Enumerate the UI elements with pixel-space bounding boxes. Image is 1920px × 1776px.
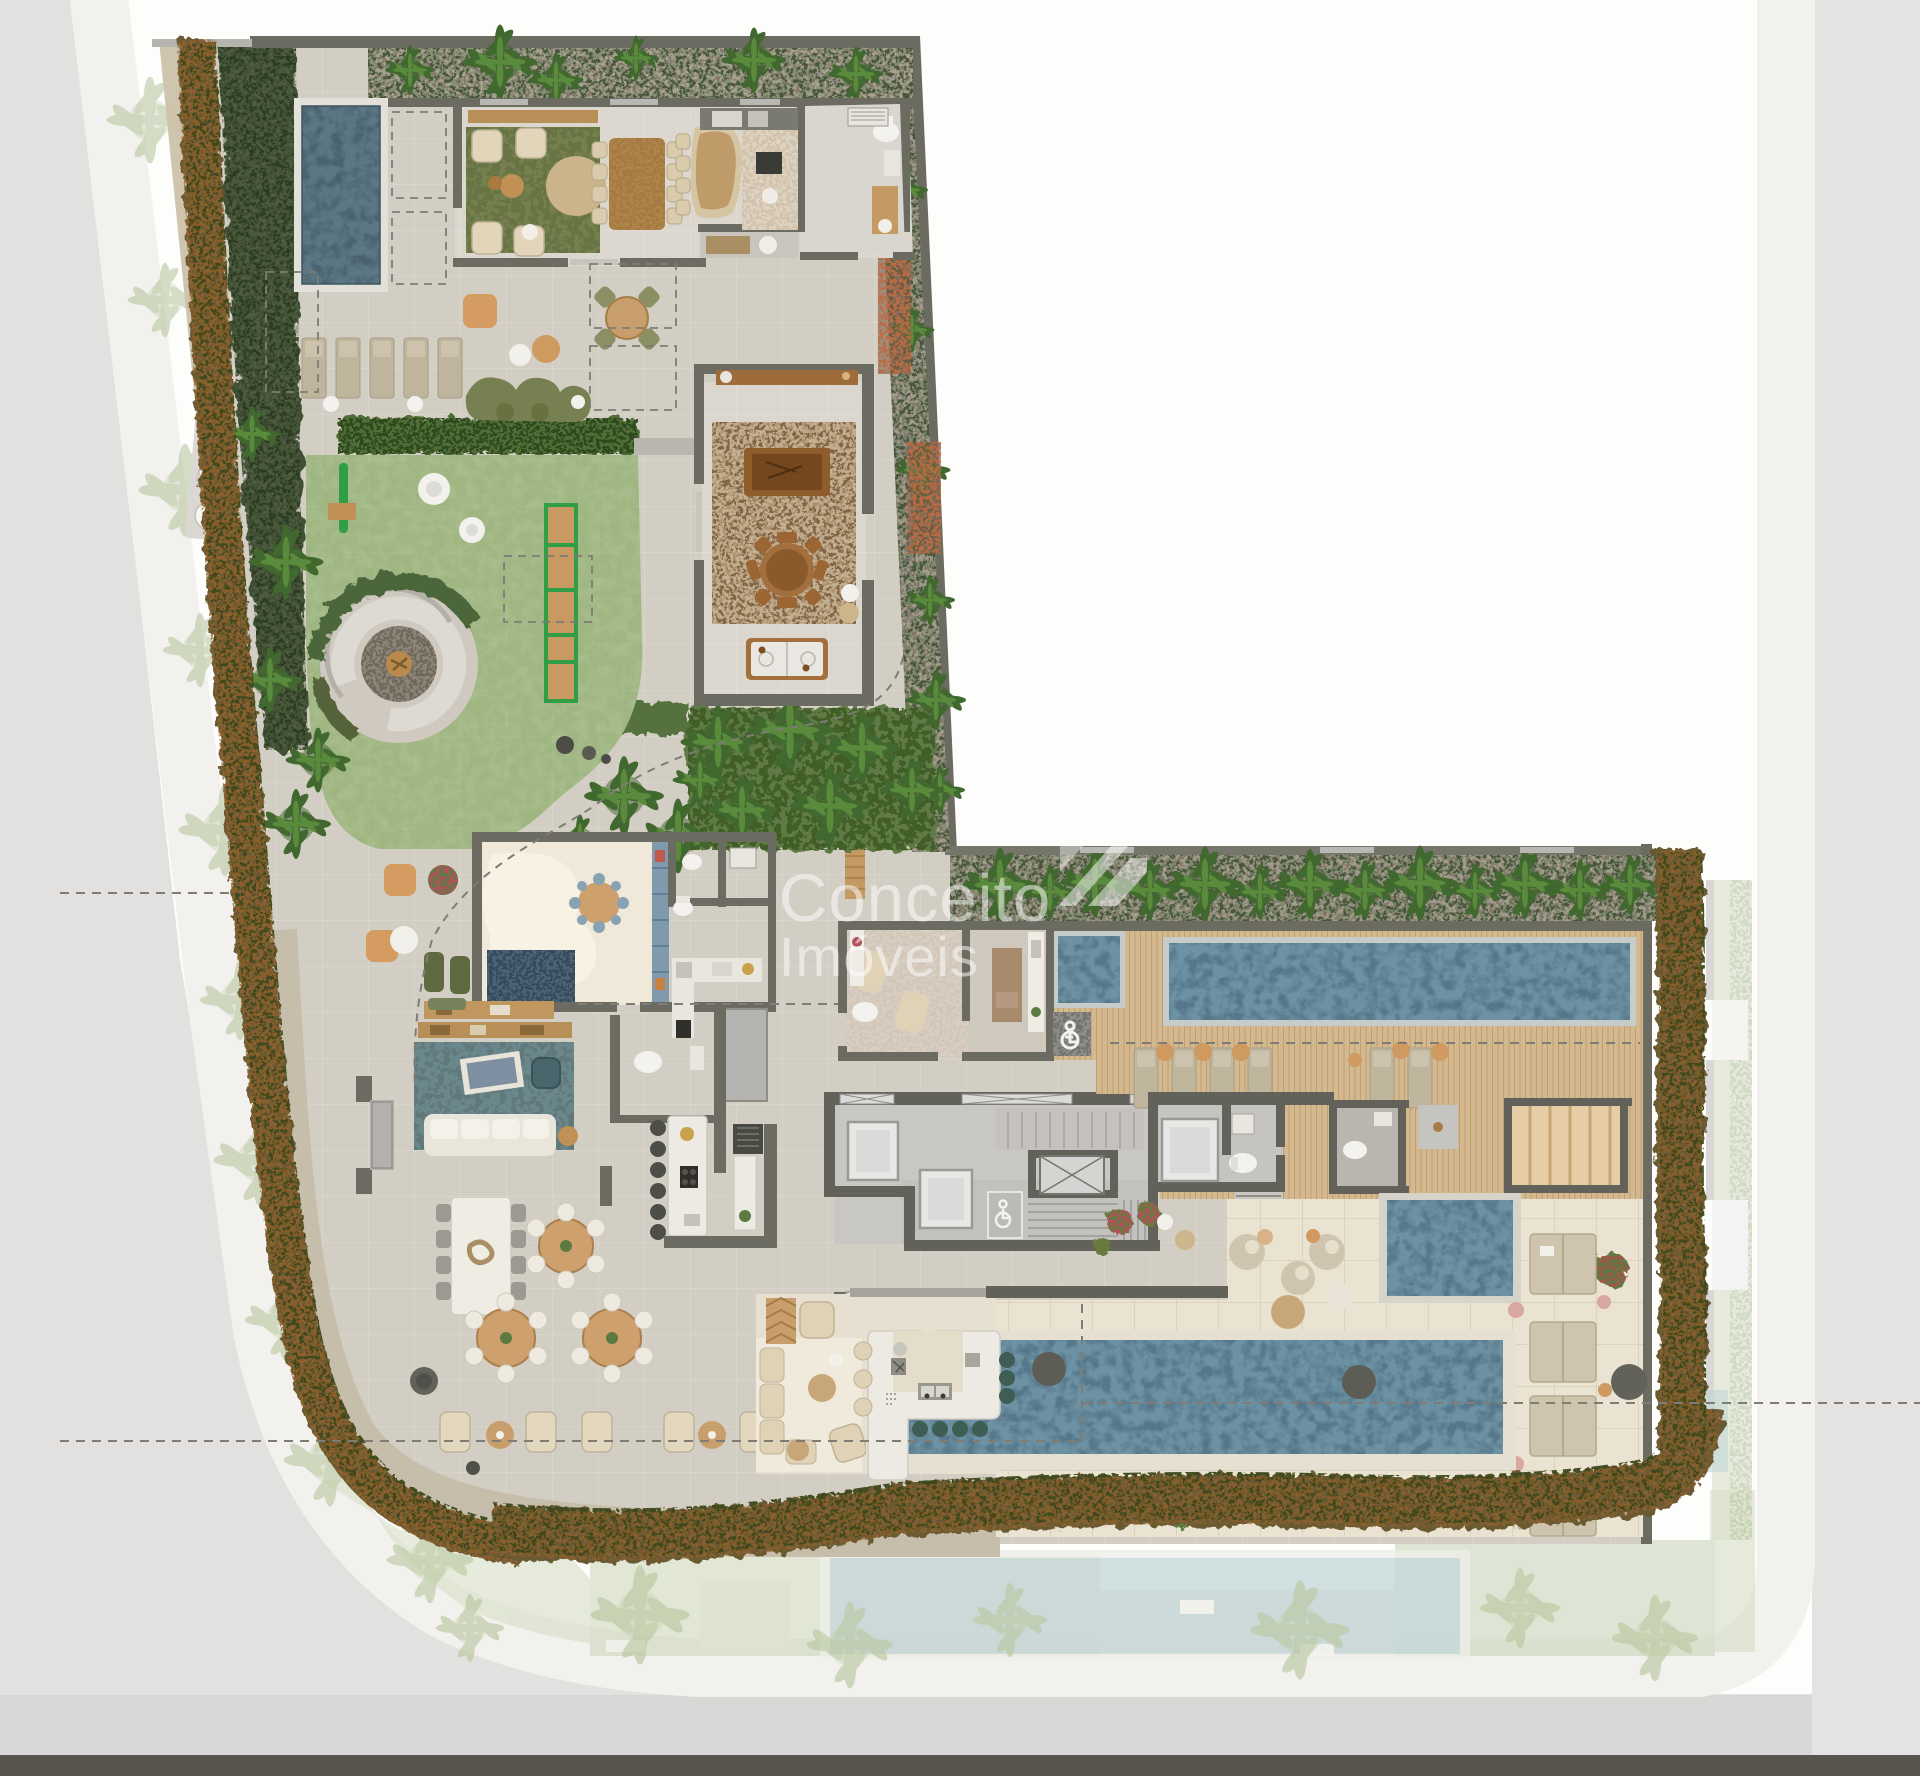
svg-text:Imóveis: Imóveis — [779, 925, 979, 988]
